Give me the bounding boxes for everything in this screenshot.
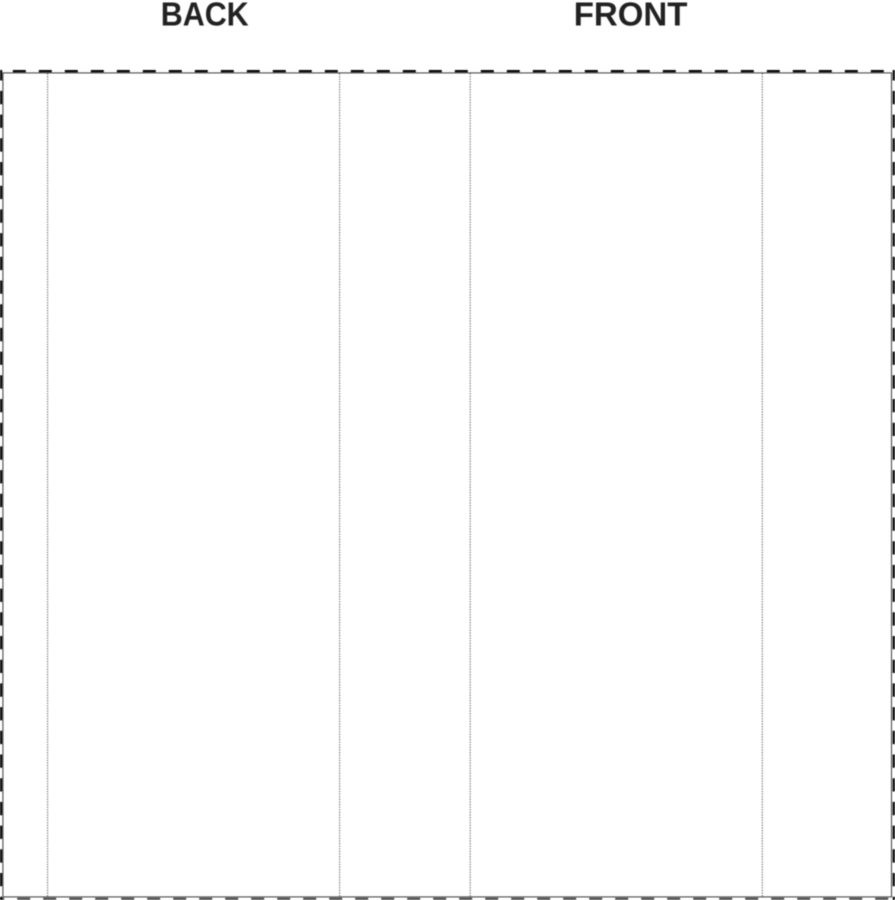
svg-text:FRONT: FRONT (574, 0, 688, 33)
svg-text:BACK: BACK (161, 0, 249, 33)
